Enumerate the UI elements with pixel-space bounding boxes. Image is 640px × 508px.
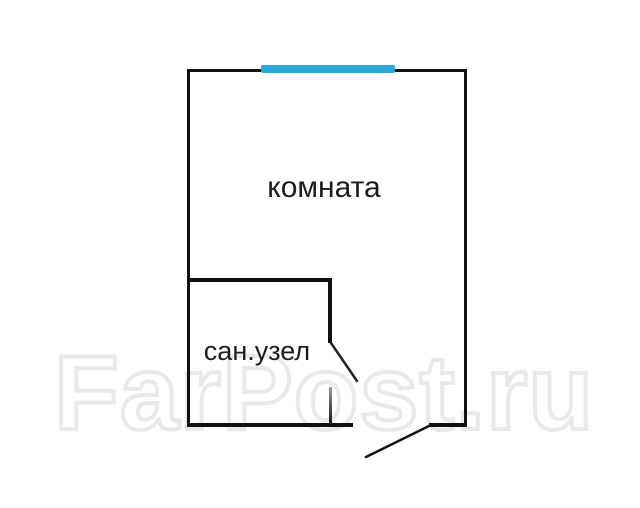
- room-label: комната: [267, 171, 381, 204]
- window-marker: [261, 65, 395, 73]
- bathroom-wall-right-stub: [329, 387, 332, 423]
- watermark-text: FarPost.ru: [54, 334, 594, 452]
- wall-right: [464, 69, 467, 427]
- bathroom-wall-top: [187, 278, 332, 282]
- bathroom-wall-right-upper: [328, 278, 332, 343]
- floor-plan-svg: FarPost.ru комната сан.узел: [0, 0, 640, 508]
- wall-bottom-left-segment: [187, 423, 353, 427]
- bathroom-label: сан.узел: [204, 336, 310, 366]
- floorplan-image: FarPost.ru комната сан.узел: [0, 0, 640, 508]
- wall-bottom-right-segment: [429, 423, 467, 427]
- wall-left: [187, 69, 190, 427]
